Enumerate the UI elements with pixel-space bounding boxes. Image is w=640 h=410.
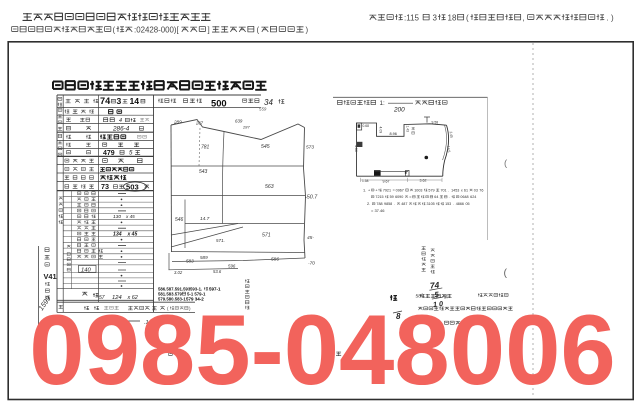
- svg-text:597-1: 597-1: [209, 287, 221, 292]
- svg-text:546: 546: [175, 217, 184, 223]
- svg-text:200: 200: [393, 107, 405, 114]
- svg-text:53.6: 53.6: [213, 269, 222, 274]
- svg-text:64: 64: [434, 195, 438, 199]
- svg-text:-70: -70: [308, 261, 315, 267]
- svg-text:0985-048006: 0985-048006: [29, 295, 616, 406]
- svg-text:03: 03: [474, 189, 478, 193]
- svg-text:573: 573: [306, 145, 314, 151]
- svg-text:287: 287: [242, 125, 250, 130]
- svg-text:287: 287: [195, 121, 204, 126]
- svg-text:+: +: [368, 189, 370, 193]
- svg-text:61: 61: [464, 189, 468, 193]
- svg-text:624: 624: [470, 195, 476, 199]
- svg-text:=: =: [409, 195, 411, 199]
- svg-text:73: 73: [101, 182, 109, 191]
- svg-text:3.62: 3.62: [420, 179, 427, 183]
- svg-text:596: 596: [228, 264, 236, 269]
- svg-text::115: :115: [404, 13, 420, 22]
- svg-text:134: 134: [113, 232, 122, 238]
- svg-text:1453: 1453: [451, 189, 459, 193]
- svg-text:781: 781: [201, 145, 210, 151]
- svg-text:]: ]: [208, 25, 210, 34]
- svg-text:140: 140: [81, 267, 91, 273]
- svg-text:59: 59: [390, 195, 394, 199]
- svg-text:(: (: [466, 13, 469, 22]
- svg-text:74: 74: [100, 96, 111, 106]
- svg-text:543: 543: [199, 169, 208, 175]
- svg-text:14.7: 14.7: [200, 216, 210, 222]
- svg-text:571.: 571.: [216, 238, 225, 243]
- svg-text:(: (: [113, 25, 116, 34]
- svg-text:500: 500: [211, 98, 227, 109]
- svg-text:= 37.46: = 37.46: [371, 208, 385, 213]
- svg-text:.: .: [453, 202, 454, 206]
- svg-text:3.02: 3.02: [174, 270, 183, 275]
- svg-text:0648: 0648: [460, 195, 468, 199]
- svg-text:V41: V41: [44, 272, 57, 281]
- svg-text:.: .: [394, 202, 395, 206]
- svg-text:(: (: [504, 267, 508, 279]
- svg-text:4: 4: [119, 118, 122, 124]
- svg-text:.: .: [448, 189, 449, 193]
- svg-text:286-4: 286-4: [112, 126, 130, 133]
- svg-text:1:: 1:: [380, 100, 386, 107]
- svg-text:153: 153: [445, 202, 451, 206]
- svg-text:1.43: 1.43: [406, 126, 410, 133]
- svg-text:571: 571: [262, 233, 271, 239]
- svg-text:05: 05: [466, 202, 470, 206]
- svg-text:9.58: 9.58: [432, 120, 439, 124]
- svg-text:(: (: [504, 158, 508, 169]
- svg-text:3: 3: [433, 13, 438, 22]
- svg-text:487: 487: [401, 202, 407, 206]
- svg-text:589: 589: [200, 255, 208, 260]
- svg-text:563: 563: [265, 184, 274, 190]
- svg-text:+: +: [375, 189, 377, 193]
- svg-text:1.: 1.: [363, 188, 366, 193]
- svg-text:. ): . ): [607, 13, 614, 22]
- svg-text:.: .: [449, 195, 450, 199]
- svg-text:4866: 4866: [456, 202, 464, 206]
- svg-text:586: 586: [271, 257, 279, 263]
- svg-text:9858: 9858: [384, 202, 392, 206]
- svg-text:0967: 0967: [396, 189, 404, 193]
- svg-text:4.64: 4.64: [354, 145, 358, 152]
- svg-text:-50.7: -50.7: [305, 195, 318, 201]
- svg-text:701: 701: [440, 189, 446, 193]
- svg-text::02428-000)[: :02428-000)[: [134, 25, 180, 34]
- svg-text:583: 583: [186, 259, 194, 264]
- svg-text:479: 479: [103, 150, 115, 157]
- svg-text:130: 130: [113, 214, 121, 220]
- svg-text:6090: 6090: [395, 195, 403, 199]
- svg-text:5: 5: [129, 150, 133, 157]
- svg-text:639: 639: [235, 119, 243, 124]
- svg-text:3: 3: [117, 96, 122, 106]
- svg-text:x 45: x 45: [127, 232, 138, 238]
- svg-text:579: 579: [428, 189, 434, 193]
- svg-text:45-: 45-: [307, 235, 314, 241]
- svg-text:x: x: [461, 189, 463, 193]
- svg-text:2.45: 2.45: [449, 131, 454, 138]
- svg-text:8.96: 8.96: [390, 132, 397, 136]
- svg-text:4.09: 4.09: [379, 127, 383, 134]
- svg-text:=: =: [393, 189, 395, 193]
- svg-text:14.5: 14.5: [446, 146, 451, 153]
- svg-text:7921: 7921: [383, 189, 391, 193]
- svg-text:(: (: [257, 25, 260, 34]
- svg-text:18: 18: [448, 13, 457, 22]
- svg-text:): ): [306, 25, 309, 34]
- svg-text:x 45: x 45: [125, 214, 135, 219]
- svg-text:,: ,: [523, 13, 525, 22]
- svg-text:3105: 3105: [426, 202, 434, 206]
- svg-text:2.: 2.: [367, 201, 370, 206]
- svg-text:289: 289: [173, 120, 182, 125]
- svg-text:76: 76: [479, 189, 483, 193]
- svg-text:7215: 7215: [375, 195, 383, 199]
- svg-text:14: 14: [130, 96, 140, 106]
- svg-text:1003: 1003: [414, 189, 422, 193]
- svg-text:559: 559: [259, 107, 267, 112]
- svg-text:0.68: 0.68: [363, 124, 370, 128]
- svg-text:788: 788: [376, 202, 382, 206]
- svg-text:545: 545: [261, 144, 270, 150]
